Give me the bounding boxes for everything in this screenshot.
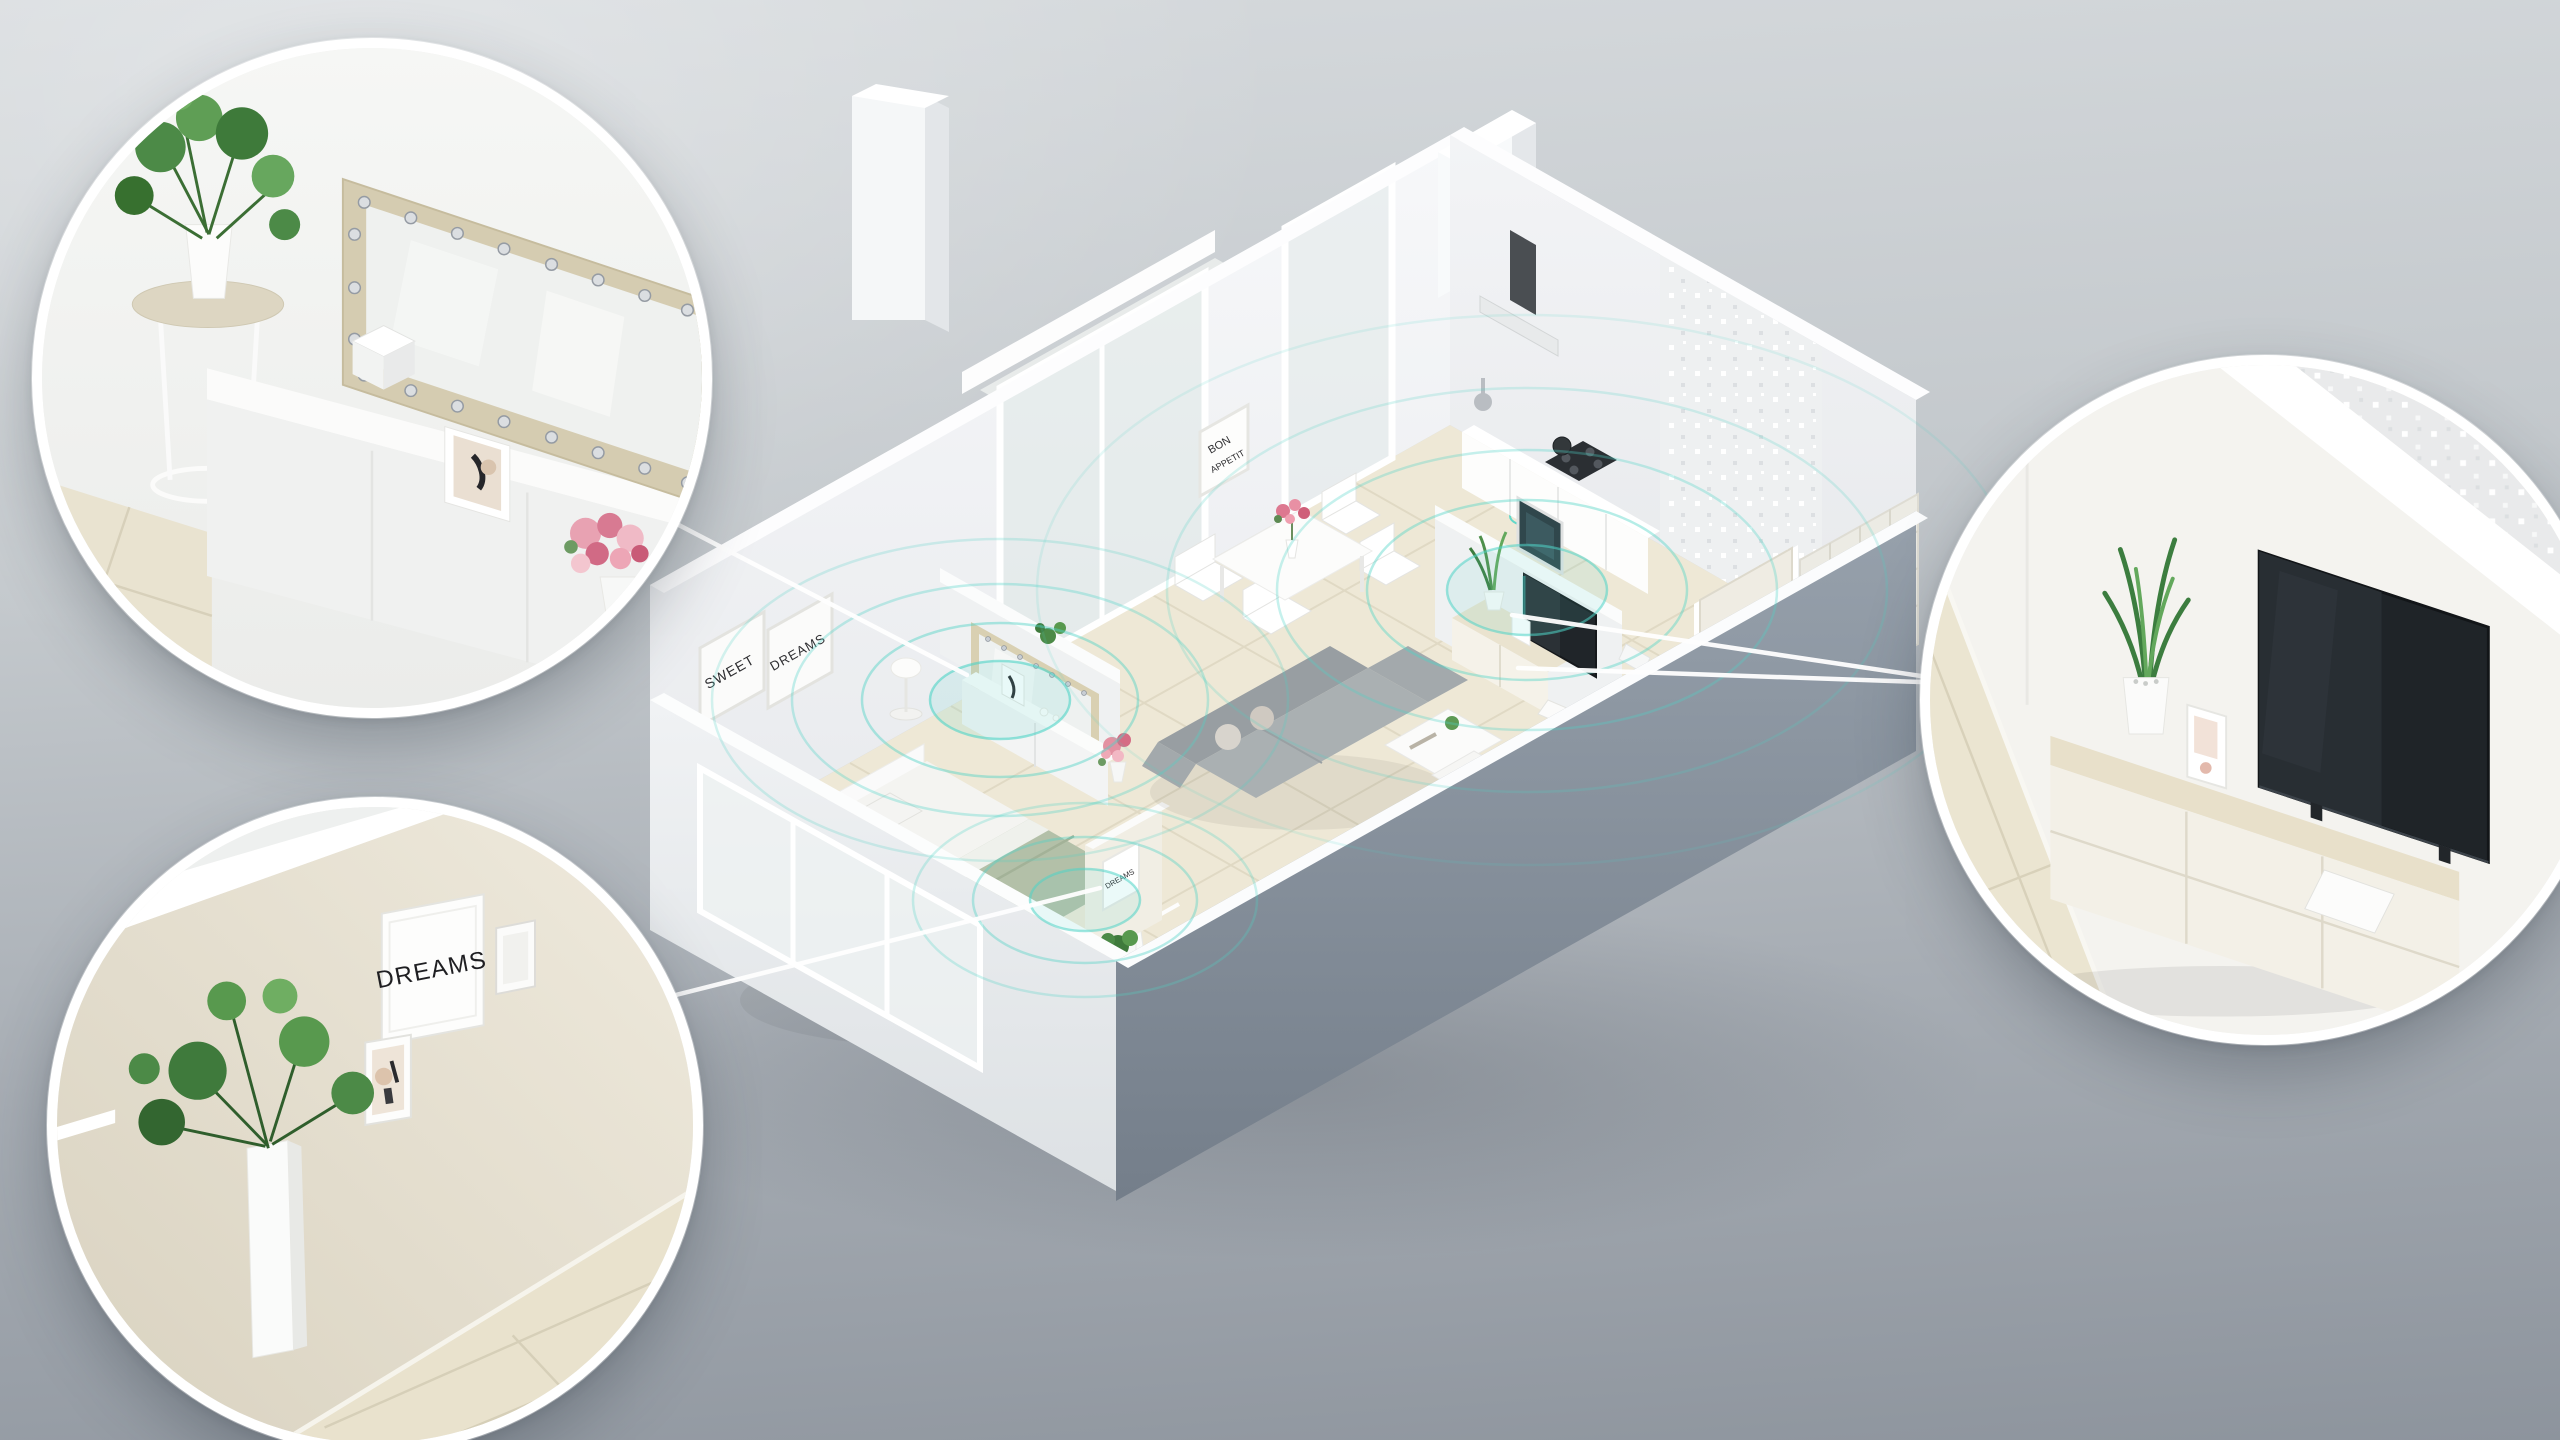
print-card bbox=[2187, 705, 2226, 789]
small-empty-frame bbox=[496, 920, 535, 994]
smart-home-coverage-illustration: SWEET DREAMS BON APPETIT bbox=[0, 0, 2560, 1440]
callout-circle-vanity bbox=[32, 38, 712, 718]
white-planter bbox=[186, 225, 233, 299]
pedestal-planter bbox=[247, 1141, 307, 1358]
wall-column-left bbox=[852, 84, 949, 332]
plant-pot bbox=[2123, 678, 2169, 734]
tv-zoom-scene bbox=[1930, 365, 2560, 1035]
sofa-pillow bbox=[1215, 724, 1241, 750]
callout-circle-dreams-wall: DREAMS bbox=[47, 797, 703, 1440]
abstract-art-frame bbox=[365, 1035, 411, 1125]
dreams-frame: DREAMS bbox=[374, 894, 489, 1044]
dreams-wall-zoom-scene: DREAMS bbox=[57, 807, 693, 1440]
vanity-zoom-scene bbox=[42, 48, 702, 708]
